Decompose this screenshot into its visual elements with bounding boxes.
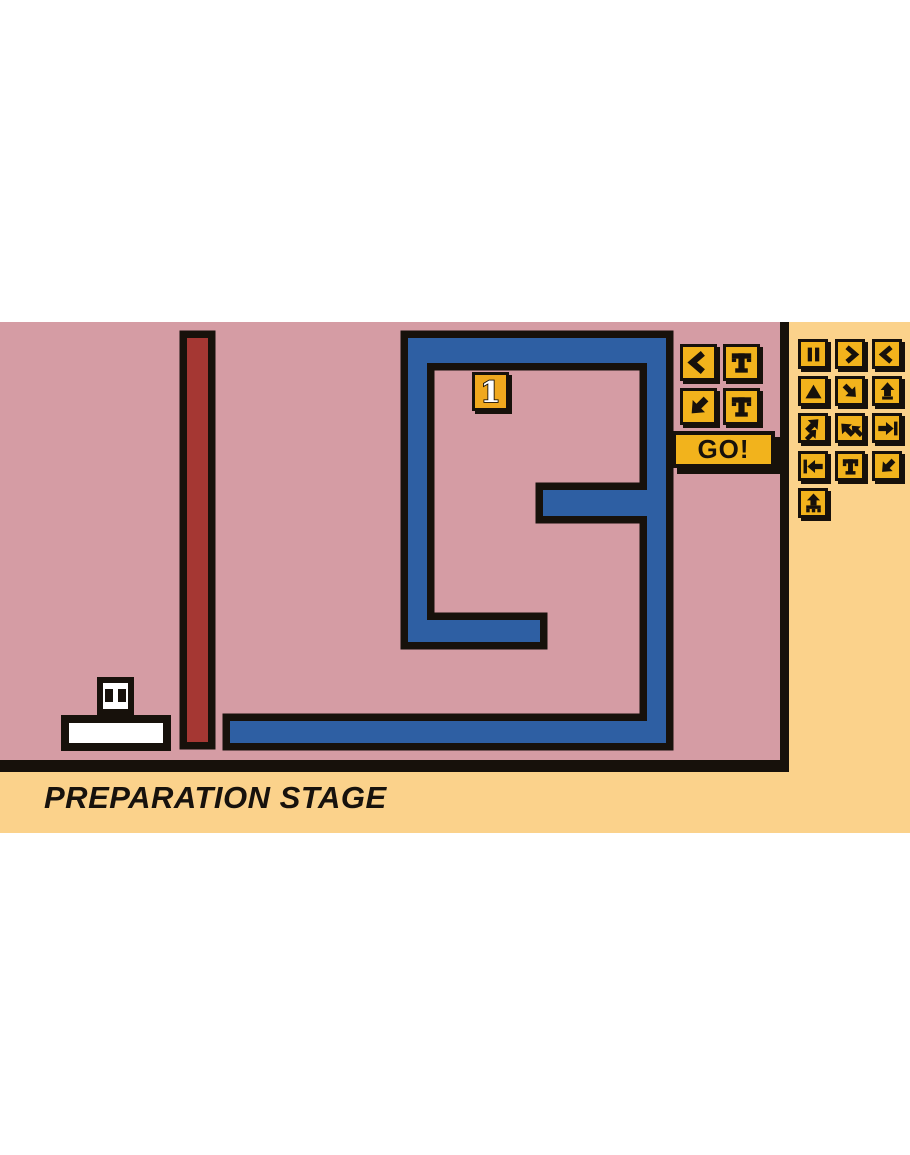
double-arrow-ne-button[interactable] — [798, 413, 828, 443]
game-screenshot: { "stage": { "title": "PREPARATION STAGE… — [0, 0, 910, 1155]
arrow-up-tail-icon — [876, 380, 899, 403]
arrow-right-bar-button[interactable] — [872, 413, 902, 443]
arrow-left-bar-icon — [802, 455, 825, 478]
arrow-right-bar-icon — [876, 417, 899, 440]
player-character — [97, 677, 134, 715]
chevron-left-icon — [684, 348, 713, 377]
game-area: 1 GO! PREPARATION STAGE — [0, 322, 910, 833]
letter-t-icon — [727, 348, 756, 377]
pause-icon — [802, 343, 825, 366]
player-eye-right — [118, 689, 126, 702]
start-platform — [61, 715, 171, 751]
letter-t-icon — [839, 455, 862, 478]
cursor-sw-icon — [684, 392, 713, 421]
letter-t-button[interactable] — [723, 344, 760, 381]
double-arrow-nw-button[interactable] — [835, 413, 865, 443]
triangle-up-button[interactable] — [798, 376, 828, 406]
stage-title: PREPARATION STAGE — [44, 780, 387, 816]
signpost-icon — [802, 492, 825, 515]
cursor-sw-button[interactable] — [872, 451, 902, 481]
cursor-se-icon — [839, 380, 862, 403]
arrow-left-bar-button[interactable] — [798, 451, 828, 481]
go-button[interactable]: GO! — [672, 431, 775, 468]
level-badge: 1 — [472, 372, 509, 411]
player-eye-left — [105, 689, 113, 702]
signpost-button[interactable] — [798, 488, 828, 518]
chevron-left-button[interactable] — [872, 339, 902, 369]
pause-button[interactable] — [798, 339, 828, 369]
letter-t-button[interactable] — [723, 388, 760, 425]
double-arrow-nw-icon — [839, 417, 862, 440]
double-arrow-ne-icon — [802, 417, 825, 440]
cursor-se-button[interactable] — [835, 376, 865, 406]
cursor-sw-icon — [876, 455, 899, 478]
triangle-up-icon — [802, 380, 825, 403]
letter-t-button[interactable] — [835, 451, 865, 481]
chevron-right-icon — [839, 343, 862, 366]
arrow-up-tail-button[interactable] — [872, 376, 902, 406]
letter-t-icon — [727, 392, 756, 421]
chevron-right-button[interactable] — [835, 339, 865, 369]
chevron-left-button[interactable] — [680, 344, 717, 381]
cursor-sw-button[interactable] — [680, 388, 717, 425]
chevron-left-icon — [876, 343, 899, 366]
